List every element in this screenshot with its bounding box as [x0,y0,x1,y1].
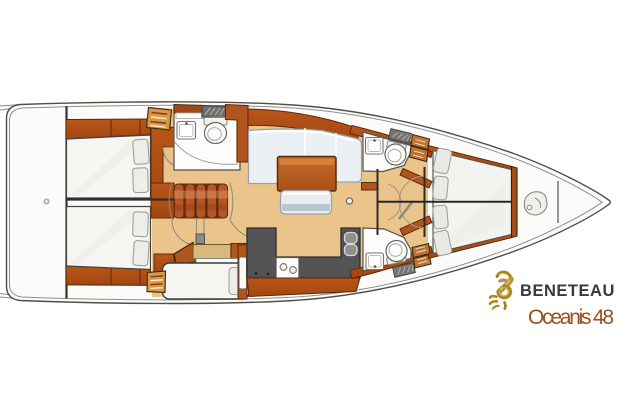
svg-text:BENETEAU: BENETEAU [520,282,616,300]
svg-text:Oceanis 48: Oceanis 48 [528,306,614,329]
